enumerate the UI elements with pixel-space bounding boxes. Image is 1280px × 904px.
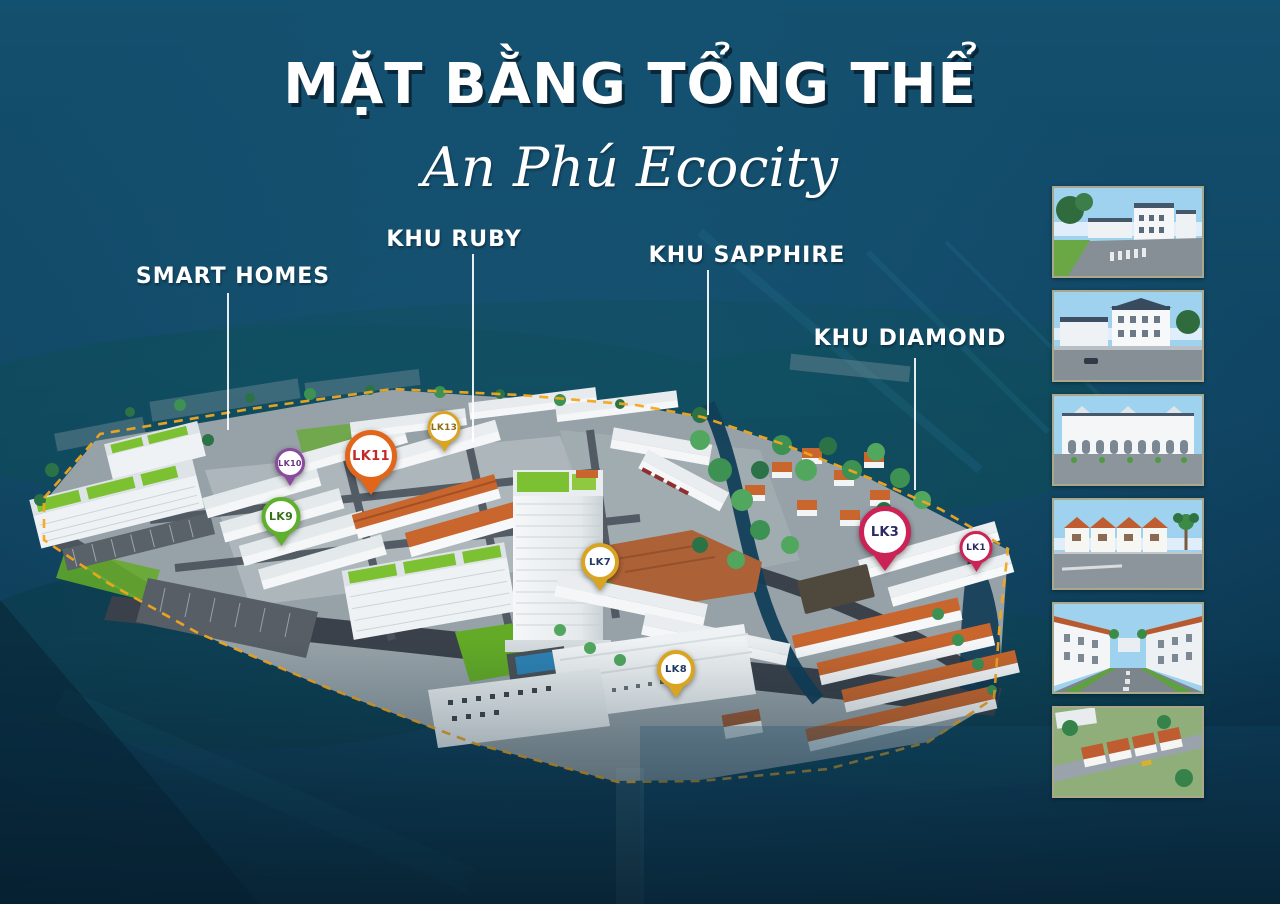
zone-label-smart-homes: SMART HOMES — [136, 266, 330, 288]
callout-line-khu-diamond — [914, 358, 916, 490]
callout-line-khu-sapphire — [707, 270, 709, 415]
map-pin-lk9[interactable]: LK9 — [262, 497, 301, 546]
map-pin-lk13[interactable]: LK13 — [428, 411, 461, 452]
map-pin-lk7[interactable]: LK7 — [581, 543, 619, 591]
pin-label-lk8: LK8 — [657, 650, 695, 688]
pin-tail — [360, 480, 382, 495]
map-pin-lk10[interactable]: LK10 — [275, 448, 305, 486]
render-white-shophouse-row[interactable] — [1052, 394, 1204, 486]
pin-label-lk7: LK7 — [581, 543, 619, 581]
render-terracotta-villa-row[interactable] — [1052, 498, 1204, 590]
zone-label-khu-sapphire: KHU SAPPHIRE — [649, 245, 846, 267]
callout-line-khu-ruby — [472, 254, 474, 442]
pin-label-lk3: LK3 — [859, 506, 911, 558]
zone-label-khu-diamond: KHU DIAMOND — [814, 328, 1007, 350]
pin-tail — [438, 442, 450, 452]
pin-tail — [668, 686, 684, 698]
render-white-townhouse-street[interactable] — [1052, 186, 1204, 278]
map-pin-lk11[interactable]: LK11 — [345, 430, 397, 495]
pin-tail — [970, 562, 982, 572]
thumbnail-strip — [1052, 186, 1204, 798]
map-pin-lk1[interactable]: LK1 — [960, 531, 993, 572]
page-title: MẶT BẰNG TỔNG THỂ — [283, 52, 977, 117]
callout-line-smart-homes — [227, 293, 229, 430]
map-pin-lk3[interactable]: LK3 — [859, 506, 911, 571]
pin-tail — [284, 476, 296, 486]
pin-label-lk9: LK9 — [262, 497, 301, 536]
map-pin-lk8[interactable]: LK8 — [657, 650, 695, 698]
pin-label-lk10: LK10 — [275, 448, 305, 478]
pin-label-lk1: LK1 — [960, 531, 993, 564]
render-white-townhouse-corner[interactable] — [1052, 290, 1204, 382]
project-name: An Phú Ecocity — [422, 136, 838, 199]
zone-label-khu-ruby: KHU RUBY — [386, 229, 521, 251]
pin-tail — [273, 534, 289, 546]
render-villa-boulevard[interactable] — [1052, 602, 1204, 694]
pin-label-lk13: LK13 — [428, 411, 461, 444]
pin-tail — [592, 579, 608, 591]
render-terracotta-aerial[interactable] — [1052, 706, 1204, 798]
pin-tail — [874, 556, 896, 571]
pin-label-lk11: LK11 — [345, 430, 397, 482]
master-plan-poster: MẶT BẰNG TỔNG THỂ An Phú Ecocity SMART H… — [0, 0, 1280, 904]
